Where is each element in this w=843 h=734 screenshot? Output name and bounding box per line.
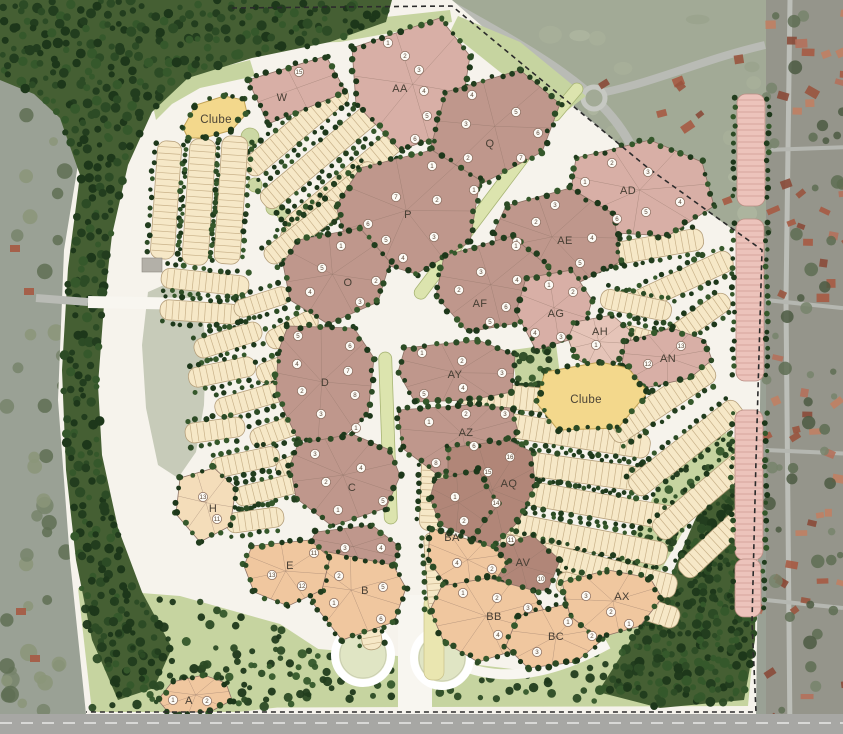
tree-icon [533,482,539,488]
tree-icon [571,320,576,325]
tree-icon [461,45,466,50]
tree-icon [481,242,486,247]
tree-icon [108,208,114,214]
tree-icon [343,18,348,23]
tree-icon [443,640,450,647]
tree-icon [715,642,720,647]
tree-icon [449,158,454,163]
lot-number: 2 [435,197,439,204]
tree-icon [442,90,447,95]
tree-icon [435,513,441,519]
tree-icon [122,687,132,697]
tree-icon [619,649,626,656]
tree-icon [126,27,136,37]
tree-icon [399,148,404,153]
tree-icon [731,411,735,415]
tree-icon [523,689,529,695]
tree-icon [396,406,401,411]
tree-icon [731,327,736,332]
tree-icon [556,568,560,572]
tree-icon [732,310,737,315]
tree-icon [88,477,95,484]
tree-icon [443,474,449,480]
tree-icon [648,671,654,677]
tree-icon [86,232,94,240]
tree-icon [765,195,770,200]
tree-icon [524,275,530,281]
block-label: BA [444,532,460,544]
tree-icon [277,41,287,51]
tree-icon [111,675,120,684]
tree-icon [338,232,343,237]
satellite-tree [39,449,53,463]
block-label: AV [516,557,531,569]
tree-icon [766,230,771,235]
tree-icon [529,375,536,382]
tree-icon [77,175,86,184]
tree-icon [445,405,451,411]
lot-number: 1 [547,282,551,289]
tree-icon [540,539,545,544]
tree-icon [19,32,27,40]
field-texture [614,62,633,75]
block-label: AD [620,185,636,197]
tree-icon [544,140,550,146]
field-texture [686,15,710,25]
tree-icon [621,338,627,344]
tree-icon [435,403,441,409]
satellite-tree [1,688,16,703]
tree-icon [308,659,317,668]
tree-icon [97,154,104,161]
tree-icon [318,589,324,595]
lot-number: 4 [295,361,299,368]
tree-icon [691,647,698,654]
tree-icon [507,558,513,564]
tree-icon [122,153,129,160]
satellite-tree [788,15,801,28]
tree-icon [616,570,622,576]
tree-icon [328,524,333,529]
tree-icon [164,9,173,18]
tree-icon [765,346,770,351]
block-label: BB [486,611,501,623]
satellite-tree [790,228,803,241]
tree-icon [764,363,770,369]
tree-icon [541,368,547,374]
lot-number: 4 [533,330,537,337]
tree-icon [481,476,488,483]
tree-icon [377,161,382,166]
tree-icon [91,623,100,632]
tree-icon [143,92,152,101]
tree-icon [360,107,366,113]
tree-icon [518,659,523,664]
tree-icon [647,680,652,685]
tree-icon [179,15,186,22]
tree-icon [108,230,114,236]
tree-icon [642,635,652,645]
lot-number: 6 [472,443,476,450]
satellite-tree [772,333,779,340]
tree-icon [52,60,60,68]
tree-icon [440,581,445,586]
tree-icon [97,592,104,599]
tree-icon [263,69,269,75]
tree-icon [294,483,299,488]
tree-icon [729,421,735,427]
block-label: AX [614,591,630,603]
tree-icon [317,324,323,330]
tree-icon [576,276,581,281]
tree-icon [96,259,105,268]
tree-icon [397,572,402,577]
tree-icon [502,323,507,328]
tree-icon [731,275,737,281]
tree-icon [220,474,225,479]
tree-icon [191,20,198,27]
tree-icon [326,99,331,104]
tree-icon [620,322,626,328]
tree-icon [364,347,370,353]
tree-icon [367,235,372,240]
tree-icon [767,105,771,109]
tree-icon [113,158,121,166]
satellite-tree [52,235,63,246]
tree-icon [636,138,642,144]
tree-icon [64,281,71,288]
tree-icon [342,326,347,331]
tree-icon [271,625,278,632]
tree-icon [763,431,768,436]
tree-icon [371,38,376,43]
house-roof [10,245,20,252]
tree-icon [68,455,74,461]
tree-icon [212,27,220,35]
tree-icon [419,458,425,464]
tree-icon [388,156,394,162]
tree-icon [406,452,412,458]
tree-icon [163,690,169,696]
tree-icon [346,227,352,233]
tree-icon [109,617,118,626]
master-plan-map: 15W123456AA4536271Q1726534P15243O5647283… [0,0,843,734]
tree-icon [171,678,176,683]
field-texture [569,30,590,41]
tree-icon [332,72,338,78]
tree-icon [766,130,772,136]
tree-icon [370,693,376,699]
tree-icon [573,425,579,431]
lot-number: 14 [493,500,500,507]
tree-icon [316,26,323,33]
field-texture [589,31,606,46]
tree-icon [474,468,480,474]
lot-number: 5 [296,333,300,340]
lot-number: 3 [503,411,507,418]
lot-number: 13 [269,572,276,579]
tree-icon [79,387,84,392]
tree-icon [126,619,135,628]
satellite-tree [804,397,813,406]
tree-icon [731,363,736,368]
tree-icon [277,4,286,13]
tree-icon [426,557,431,562]
tree-icon [434,341,439,346]
tree-icon [606,686,614,694]
tree-icon [239,20,245,26]
tree-icon [111,103,121,113]
tree-icon [729,500,734,505]
tree-icon [490,74,495,79]
tree-icon [63,40,70,47]
tree-icon [296,664,302,670]
house-roof [795,530,807,536]
tree-icon [61,116,69,124]
lot-number: 5 [514,109,518,116]
tree-icon [205,620,214,629]
tree-icon [699,364,705,370]
lot-number: 4 [470,92,474,99]
tree-icon [71,419,78,426]
tree-icon [653,654,662,663]
lot-number: 15 [485,469,492,476]
block-label: AZ [459,427,474,439]
tree-icon [369,15,376,22]
tree-icon [88,577,96,585]
tree-icon [500,533,506,539]
tree-icon [324,578,329,583]
tree-icon [529,461,535,467]
tree-icon [542,259,547,264]
block-label: AG [548,308,565,320]
block-label: A [185,695,193,707]
tree-icon [545,588,550,593]
tree-icon [93,163,101,171]
tree-icon [339,82,344,87]
satellite-tree [802,416,815,429]
tree-icon [545,129,550,134]
tree-icon [765,293,771,299]
house-roof [24,288,34,295]
tree-icon [514,352,519,357]
tree-icon [220,55,227,62]
tree-icon [63,13,71,21]
tree-icon [682,662,690,670]
tree-icon [329,325,335,331]
tree-icon [388,693,396,701]
tree-icon [304,43,310,49]
tree-icon [453,583,458,588]
tree-icon [224,36,231,43]
tree-icon [692,588,701,597]
tree-icon [732,175,737,180]
tree-icon [765,410,770,415]
tree-icon [286,297,291,302]
tree-icon [140,652,146,658]
tree-icon [581,687,588,694]
tree-icon [104,121,112,129]
tree-icon [709,593,717,601]
tree-icon [18,8,25,15]
lot-number: 5 [425,113,429,120]
tree-icon [763,438,769,444]
house-roof [803,239,813,246]
tree-icon [86,495,92,501]
satellite-tree [34,671,47,684]
tree-icon [70,532,79,541]
tree-icon [100,516,105,521]
tree-icon [467,401,473,407]
tree-icon [400,596,406,602]
tree-icon [70,504,78,512]
tree-icon [642,336,646,340]
tree-icon [258,670,265,677]
tree-icon [545,664,552,671]
tree-icon [113,80,122,89]
tree-icon [369,368,374,373]
satellite-tree [826,236,836,246]
tree-icon [5,71,11,77]
satellite-tree [788,463,798,473]
tree-icon [276,634,281,639]
tree-icon [435,630,441,636]
tree-icon [344,555,349,560]
tree-icon [124,598,130,604]
satellite-tree [52,657,67,672]
tree-icon [533,274,540,281]
tree-icon [425,404,431,410]
block-label: P [404,209,412,221]
tree-icon [238,688,247,697]
tree-icon [308,309,313,314]
tree-icon [520,508,526,514]
tree-icon [340,521,345,526]
tree-icon [198,613,206,621]
tree-icon [436,575,441,580]
tree-icon [467,239,473,245]
lot-number: 2 [464,411,468,418]
tree-icon [217,702,224,709]
lot-number: 4 [496,632,500,639]
tree-icon [763,518,769,524]
tree-icon [475,660,480,665]
lot-number: 3 [584,593,588,600]
tree-icon [437,265,444,272]
tree-icon [489,240,494,245]
house-roof [795,39,808,48]
tree-icon [200,135,205,140]
tree-icon [176,474,182,480]
tree-icon [206,54,214,62]
tree-icon [733,637,740,644]
tree-icon [291,497,297,503]
tree-icon [78,510,87,519]
tree-icon [92,531,98,537]
tree-icon [700,157,706,163]
tree-icon [72,237,81,246]
tree-icon [685,630,691,636]
tree-icon [128,67,137,76]
lot-number: 3 [559,334,563,341]
tree-icon [214,131,220,137]
tree-icon [703,172,708,177]
tree-icon [93,39,102,48]
tree-icon [320,515,325,520]
tree-icon [200,469,204,473]
tree-icon [464,578,469,583]
tree-icon [70,248,76,254]
tree-icon [451,31,455,35]
tree-icon [624,670,633,679]
tree-icon [679,331,685,337]
satellite-tree [831,393,837,399]
satellite-tree [810,681,821,692]
lot-number: 2 [374,278,378,285]
lot-number: 2 [534,219,538,226]
tree-icon [110,25,116,31]
tree-icon [357,437,362,442]
tree-icon [345,314,351,320]
tree-icon [683,686,690,693]
tree-icon [172,57,182,67]
tree-icon [306,322,312,328]
tree-icon [637,381,643,387]
tree-icon [191,103,198,110]
tree-icon [496,576,502,582]
tree-icon [235,34,245,44]
tree-icon [458,165,464,171]
lot-number: 3 [319,411,323,418]
tree-icon [629,634,636,641]
tree-icon [730,605,735,610]
tree-icon [762,457,768,463]
tree-icon [302,31,308,37]
house-roof [800,388,809,398]
tree-icon [728,571,733,576]
tree-icon [766,300,771,305]
tree-icon [483,656,489,662]
satellite-tree [57,163,73,179]
tree-icon [187,136,192,141]
tree-icon [433,618,438,623]
tree-icon [457,38,463,44]
tree-icon [453,473,458,478]
tree-icon [618,257,624,263]
lot-number: 3 [432,234,436,241]
tree-icon [426,138,432,144]
tree-icon [575,363,580,368]
tree-icon [763,336,769,342]
tree-icon [401,344,407,350]
tree-icon [315,653,321,659]
tree-icon [272,371,279,378]
tree-icon [510,406,517,413]
tree-icon [585,316,590,321]
tree-icon [243,111,249,117]
tree-icon [399,359,405,365]
tree-icon [764,257,768,261]
tree-icon [217,14,226,23]
tree-icon [602,205,608,211]
tree-icon [83,350,92,359]
tree-icon [292,450,298,456]
tree-icon [512,416,517,421]
tree-icon [136,637,146,647]
tree-icon [701,680,706,685]
tree-icon [79,379,86,386]
tree-icon [535,665,541,671]
